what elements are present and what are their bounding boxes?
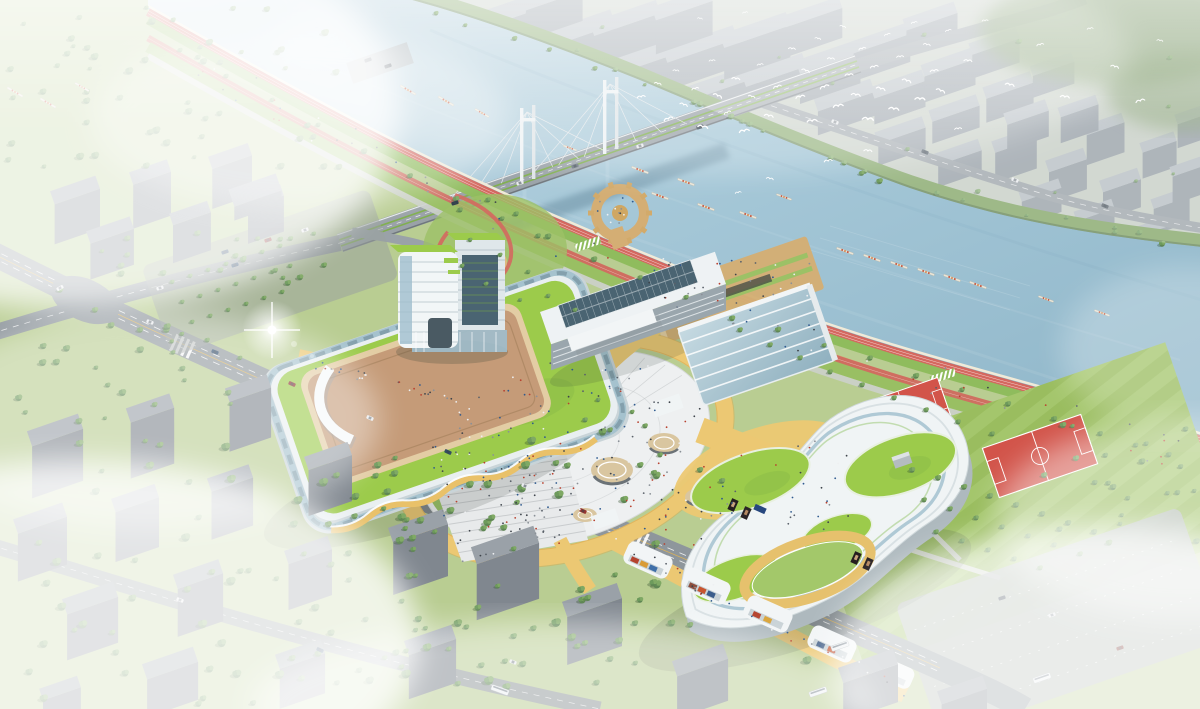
person	[468, 408, 470, 410]
person	[450, 398, 452, 400]
person	[498, 435, 500, 437]
person	[751, 616, 753, 618]
person	[470, 423, 472, 425]
person	[607, 257, 609, 259]
person	[534, 515, 536, 517]
person	[772, 294, 774, 296]
person	[680, 264, 682, 266]
person	[719, 283, 721, 285]
person	[596, 466, 598, 468]
fog	[90, 30, 510, 210]
person	[547, 506, 549, 508]
person	[601, 429, 603, 431]
person	[792, 497, 794, 499]
person	[555, 255, 557, 257]
person	[442, 470, 444, 472]
person	[717, 300, 719, 302]
person	[584, 374, 586, 376]
person	[573, 487, 575, 489]
person	[616, 479, 618, 481]
person	[508, 431, 510, 433]
person	[487, 510, 489, 512]
person	[755, 262, 757, 264]
person	[720, 513, 722, 515]
person	[622, 197, 624, 199]
person	[793, 514, 795, 516]
person	[740, 261, 742, 263]
person	[665, 529, 667, 531]
person	[672, 489, 674, 491]
person	[424, 393, 426, 395]
person	[663, 475, 665, 477]
person	[665, 572, 667, 574]
person	[467, 419, 469, 421]
person	[797, 350, 799, 352]
person	[541, 510, 543, 512]
person	[507, 390, 509, 392]
person	[1076, 405, 1078, 407]
person	[750, 280, 752, 282]
person	[647, 365, 649, 367]
person	[620, 486, 622, 488]
person	[808, 324, 810, 326]
person	[459, 427, 461, 429]
person	[826, 502, 828, 504]
person	[488, 526, 490, 528]
person	[610, 473, 612, 475]
person	[665, 516, 667, 518]
person	[749, 309, 751, 311]
person	[703, 466, 705, 468]
person	[959, 396, 961, 398]
person	[433, 389, 435, 391]
person	[649, 407, 651, 409]
person	[678, 442, 680, 444]
person	[483, 477, 485, 479]
person	[736, 302, 738, 304]
person	[508, 466, 510, 468]
person	[787, 632, 789, 634]
person	[440, 466, 442, 468]
person	[643, 492, 645, 494]
person	[633, 554, 635, 556]
person	[665, 514, 667, 516]
person	[762, 295, 764, 297]
person	[646, 442, 648, 444]
person	[460, 414, 462, 416]
person	[821, 487, 823, 489]
person	[532, 484, 534, 486]
person	[811, 643, 813, 645]
person	[543, 412, 545, 414]
person	[803, 638, 805, 640]
person	[721, 498, 723, 500]
person	[529, 413, 531, 415]
tower-curtain-glass	[462, 255, 498, 325]
person	[722, 486, 724, 488]
person	[603, 458, 605, 460]
person	[543, 428, 545, 430]
person	[542, 482, 544, 484]
person	[810, 349, 812, 351]
person	[694, 587, 696, 589]
person	[701, 294, 703, 296]
person	[527, 522, 529, 524]
person	[427, 393, 429, 395]
person	[509, 490, 511, 492]
person	[512, 376, 514, 378]
person	[650, 439, 652, 441]
person	[685, 499, 687, 501]
person	[524, 394, 526, 396]
person	[498, 218, 500, 220]
person	[746, 321, 748, 323]
person	[636, 378, 638, 380]
person	[667, 508, 669, 510]
person	[731, 502, 733, 504]
person	[442, 510, 444, 512]
person	[510, 531, 512, 533]
person	[700, 518, 702, 520]
person	[535, 528, 537, 530]
person	[713, 584, 715, 586]
person	[777, 325, 779, 327]
person	[493, 553, 495, 555]
person	[599, 508, 601, 510]
person	[540, 405, 542, 407]
person	[731, 512, 733, 514]
person	[523, 477, 525, 479]
person	[624, 426, 626, 428]
person	[479, 200, 481, 202]
person	[429, 392, 431, 394]
person	[499, 417, 501, 419]
person	[485, 470, 487, 472]
pier-tooth	[646, 211, 652, 216]
person	[517, 494, 519, 496]
person	[398, 381, 400, 383]
person	[528, 457, 530, 459]
person	[469, 436, 471, 438]
person	[680, 451, 682, 453]
person	[685, 507, 687, 509]
person	[559, 487, 561, 489]
person	[654, 410, 656, 412]
person	[657, 402, 659, 404]
person	[610, 222, 612, 224]
person	[678, 492, 680, 494]
person	[702, 287, 704, 289]
person	[817, 516, 819, 518]
person	[441, 459, 443, 461]
person	[620, 208, 622, 210]
person	[700, 593, 702, 595]
person	[653, 401, 655, 403]
person	[433, 467, 435, 469]
person	[623, 214, 625, 216]
person	[480, 555, 482, 557]
person	[593, 520, 595, 522]
person	[521, 498, 523, 500]
person	[529, 474, 531, 476]
person	[446, 397, 448, 399]
person	[645, 376, 647, 378]
person	[632, 201, 634, 203]
person	[630, 506, 632, 508]
person	[691, 585, 693, 587]
person	[790, 516, 792, 518]
person	[790, 511, 792, 513]
person	[481, 435, 483, 437]
person	[700, 538, 702, 540]
person	[502, 522, 504, 524]
person	[654, 270, 656, 272]
person	[607, 214, 609, 216]
person	[611, 457, 613, 459]
person	[823, 528, 825, 530]
person	[819, 645, 821, 647]
person	[461, 488, 463, 490]
person	[489, 510, 491, 512]
person	[539, 507, 541, 509]
person	[711, 600, 713, 602]
person	[728, 603, 730, 605]
person	[501, 478, 503, 480]
person	[532, 423, 534, 425]
person	[649, 493, 651, 495]
person	[469, 452, 471, 454]
person	[529, 394, 531, 396]
person	[628, 461, 630, 463]
person	[693, 415, 695, 417]
person	[456, 501, 458, 503]
person	[485, 554, 487, 556]
person	[797, 445, 799, 447]
person	[455, 401, 457, 403]
person	[684, 421, 686, 423]
person	[484, 462, 486, 464]
person	[669, 401, 671, 403]
person	[514, 517, 516, 519]
person	[661, 499, 663, 501]
person	[694, 590, 696, 592]
person	[846, 455, 848, 457]
person	[567, 431, 569, 433]
person	[593, 243, 595, 245]
person	[619, 212, 621, 214]
person	[847, 515, 849, 517]
tower-arch-opening	[428, 318, 452, 348]
person	[659, 518, 661, 520]
person	[519, 528, 521, 530]
person	[772, 276, 774, 278]
person	[787, 523, 789, 525]
person	[510, 480, 512, 482]
person	[577, 483, 579, 485]
person	[731, 260, 733, 262]
person	[535, 532, 537, 534]
person	[987, 387, 989, 389]
person	[668, 264, 670, 266]
person	[560, 443, 562, 445]
person	[669, 262, 671, 264]
person	[571, 513, 573, 515]
person	[699, 408, 701, 410]
person	[618, 387, 620, 389]
person	[665, 454, 667, 456]
person	[582, 390, 584, 392]
person	[639, 368, 641, 370]
person	[534, 494, 536, 496]
person	[506, 521, 508, 523]
person	[800, 472, 802, 474]
person	[549, 474, 551, 476]
person	[604, 426, 606, 428]
person	[548, 410, 550, 412]
person	[488, 495, 490, 497]
person	[806, 295, 808, 297]
person	[676, 306, 678, 308]
person	[654, 545, 656, 547]
person	[568, 403, 570, 405]
person	[598, 395, 600, 397]
person	[633, 500, 635, 502]
person	[628, 378, 630, 380]
office-tower	[390, 233, 507, 352]
person	[460, 539, 462, 541]
person	[771, 629, 773, 631]
person	[599, 201, 601, 203]
person	[790, 282, 792, 284]
person	[525, 519, 527, 521]
person	[457, 543, 459, 545]
person	[866, 360, 868, 362]
person	[519, 461, 521, 463]
person	[358, 370, 360, 372]
person	[543, 530, 545, 532]
person	[495, 201, 497, 203]
person	[613, 474, 615, 476]
person	[694, 282, 696, 284]
person	[634, 404, 636, 406]
person	[551, 487, 553, 489]
person	[554, 536, 556, 538]
person	[703, 537, 705, 539]
person	[520, 379, 522, 381]
person	[543, 516, 545, 518]
person	[448, 496, 450, 498]
person	[666, 426, 668, 428]
person	[827, 521, 829, 523]
person	[443, 515, 445, 517]
person	[503, 390, 505, 392]
person	[654, 557, 656, 559]
person	[609, 386, 611, 388]
person	[526, 514, 528, 516]
person	[549, 362, 551, 364]
person	[464, 468, 466, 470]
person	[615, 538, 617, 540]
person	[912, 378, 914, 380]
person	[780, 288, 782, 290]
tower-terrace	[448, 270, 460, 274]
person	[963, 387, 965, 389]
person	[363, 372, 365, 374]
person	[648, 282, 650, 284]
person	[616, 377, 618, 379]
person	[687, 293, 689, 295]
person	[444, 395, 446, 397]
person	[420, 394, 422, 396]
person	[638, 457, 640, 459]
pier-tooth	[588, 211, 594, 216]
person	[602, 370, 604, 372]
person	[626, 500, 628, 502]
person	[790, 640, 792, 642]
person	[1004, 407, 1006, 409]
person	[665, 563, 667, 565]
aerial-rendering	[0, 0, 1200, 709]
person	[550, 455, 552, 457]
person	[837, 463, 839, 465]
person	[459, 438, 461, 440]
person	[734, 491, 736, 493]
person	[658, 462, 660, 464]
person	[693, 544, 695, 546]
person	[520, 504, 522, 506]
person	[733, 322, 735, 324]
person	[709, 486, 711, 488]
person	[775, 464, 777, 466]
person	[679, 468, 681, 470]
person	[563, 450, 565, 452]
person	[735, 274, 737, 276]
person	[716, 263, 718, 265]
person	[609, 388, 611, 390]
person	[711, 515, 713, 517]
person	[559, 509, 561, 511]
person	[535, 473, 537, 475]
person	[930, 393, 932, 395]
person	[694, 287, 696, 289]
person	[571, 369, 573, 371]
person	[644, 528, 646, 530]
person	[663, 258, 665, 260]
person	[726, 503, 728, 505]
person	[637, 421, 639, 423]
person	[568, 396, 570, 398]
person	[492, 228, 494, 230]
person	[944, 367, 946, 369]
person	[666, 471, 668, 473]
person	[627, 482, 629, 484]
person	[591, 392, 593, 394]
person	[814, 440, 816, 442]
person	[480, 488, 482, 490]
person	[813, 329, 815, 331]
person	[741, 455, 743, 457]
person	[620, 390, 622, 392]
person	[492, 454, 494, 456]
person	[654, 547, 656, 549]
person	[469, 530, 471, 532]
person	[455, 451, 457, 453]
person	[834, 477, 836, 479]
person	[784, 346, 786, 348]
person	[537, 536, 539, 538]
person	[492, 436, 494, 438]
person	[515, 502, 517, 504]
